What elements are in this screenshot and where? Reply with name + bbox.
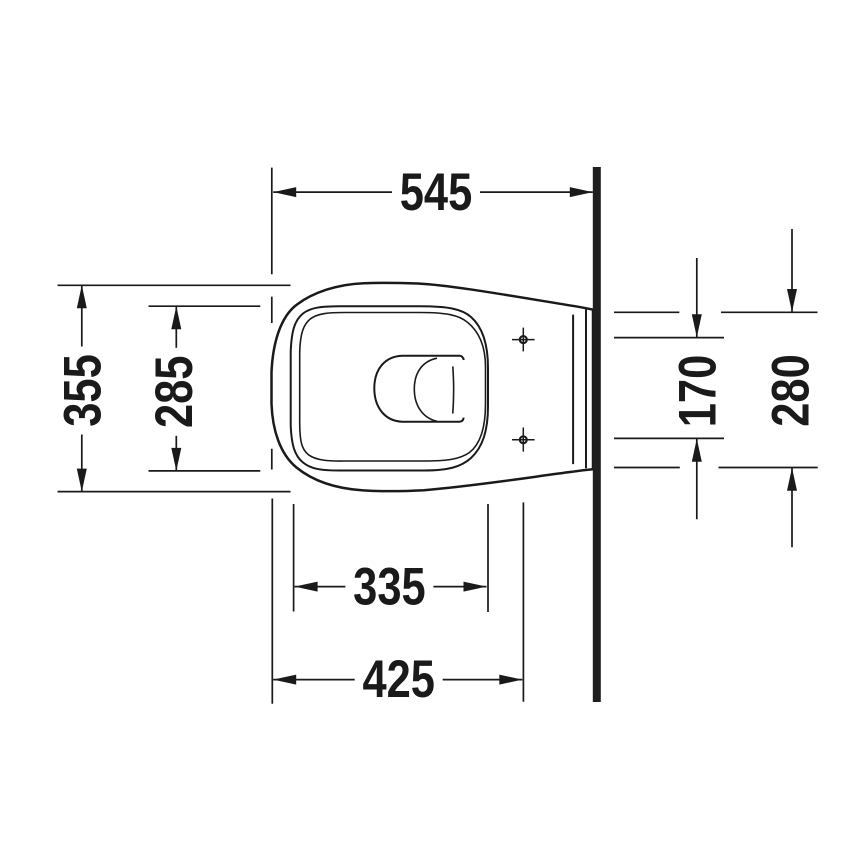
- svg-text:335: 335: [353, 558, 425, 617]
- svg-text:545: 545: [400, 163, 472, 222]
- svg-text:355: 355: [53, 354, 112, 426]
- svg-text:285: 285: [145, 356, 204, 428]
- svg-text:280: 280: [762, 354, 821, 426]
- svg-text:425: 425: [362, 650, 434, 709]
- svg-text:170: 170: [668, 355, 727, 427]
